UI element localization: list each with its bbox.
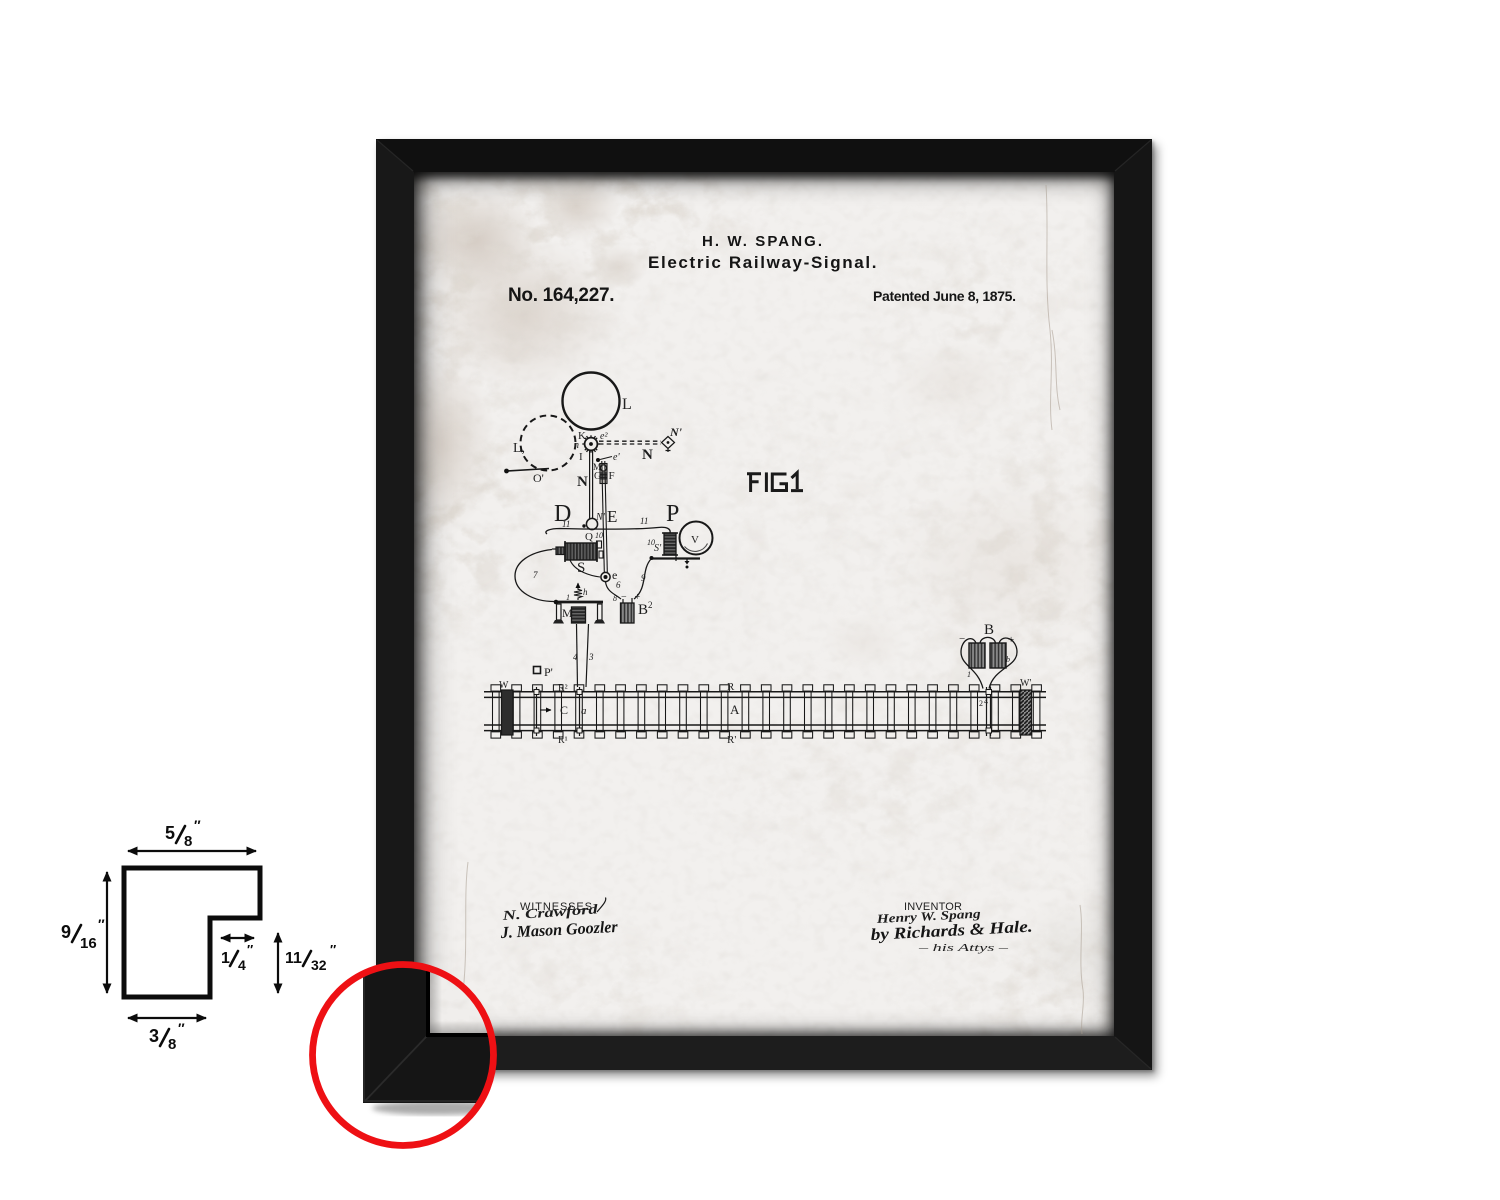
svg-text:H. W. SPANG.: H. W. SPANG. [702,233,827,250]
svg-text:1: 1 [221,950,230,967]
svg-text:C: C [560,703,568,717]
svg-text:n: n [574,440,579,451]
svg-text:″: ″ [178,1020,185,1036]
svg-text:11: 11 [640,516,648,526]
svg-text:S: S [577,560,585,576]
svg-text:9: 9 [61,922,71,942]
svg-text:N: N [642,447,653,463]
svg-text:32: 32 [311,957,327,973]
svg-text:B: B [984,622,994,638]
svg-text:9: 9 [641,573,646,583]
svg-text:″: ″ [194,817,201,833]
svg-text:Q: Q [585,531,593,543]
svg-text:8: 8 [184,833,192,850]
svg-text:″: ″ [247,942,253,957]
svg-text:b: b [1006,655,1010,664]
svg-text:11: 11 [285,950,302,967]
svg-text:2: 2 [648,600,653,610]
svg-text:R': R' [727,734,736,746]
svg-text:S': S' [654,543,662,554]
svg-text:h: h [583,587,588,597]
svg-text:– his Attys –: – his Attys – [917,942,1008,954]
svg-text:Electric Railway-Signal.: Electric Railway-Signal. [648,253,879,272]
svg-text:a: a [581,705,587,717]
svg-text:2: 2 [979,699,983,708]
svg-text:1: 1 [967,670,971,679]
svg-text:10: 10 [595,531,603,540]
svg-text:11: 11 [562,519,570,529]
svg-text:6: 6 [616,580,621,590]
svg-text:L,: L, [513,441,525,456]
svg-text:A: A [730,702,740,717]
svg-text:V: V [691,534,699,546]
svg-text:P: P [666,501,679,527]
svg-text:−: − [621,592,627,603]
svg-text:8: 8 [613,594,617,603]
svg-text:e²: e² [600,431,608,442]
svg-text:E: E [607,507,617,526]
svg-text:N': N' [595,512,606,523]
svg-text:−: − [959,633,965,645]
svg-text:8: 8 [168,1036,176,1053]
svg-text:R¹: R¹ [558,735,568,746]
svg-text:K: K [578,430,586,442]
svg-text:No. 164,227.: No. 164,227. [508,285,616,306]
svg-text:W: W [499,680,509,691]
svg-text:P': P' [544,665,553,679]
svg-text:R²: R² [558,683,568,694]
svg-text:W': W' [1020,678,1031,689]
svg-text:G: G [594,471,601,482]
svg-text:10: 10 [647,538,655,547]
svg-text:5: 5 [165,823,175,843]
svg-text:O': O' [533,471,544,485]
svg-text:16: 16 [80,935,97,952]
svg-text:7: 7 [533,570,538,580]
svg-text:e': e' [613,452,620,463]
svg-text:″: ″ [98,916,105,932]
svg-text:L: L [622,396,632,413]
svg-text:3: 3 [149,1026,159,1046]
svg-text:I: I [579,451,583,463]
svg-text:B: B [638,602,648,618]
svg-text:F: F [609,470,615,482]
svg-text:Patented June 8, 1875.: Patented June 8, 1875. [873,288,1017,304]
svg-text:3: 3 [588,652,594,662]
svg-text:N: N [577,474,588,490]
svg-text:4: 4 [238,957,246,973]
svg-text:1: 1 [566,593,570,602]
svg-text:4: 4 [984,697,988,706]
svg-text:N': N' [669,425,683,439]
svg-text:M: M [562,606,573,620]
svg-text:R: R [727,681,735,693]
svg-text:″: ″ [330,942,336,957]
svg-text:4: 4 [573,652,578,662]
